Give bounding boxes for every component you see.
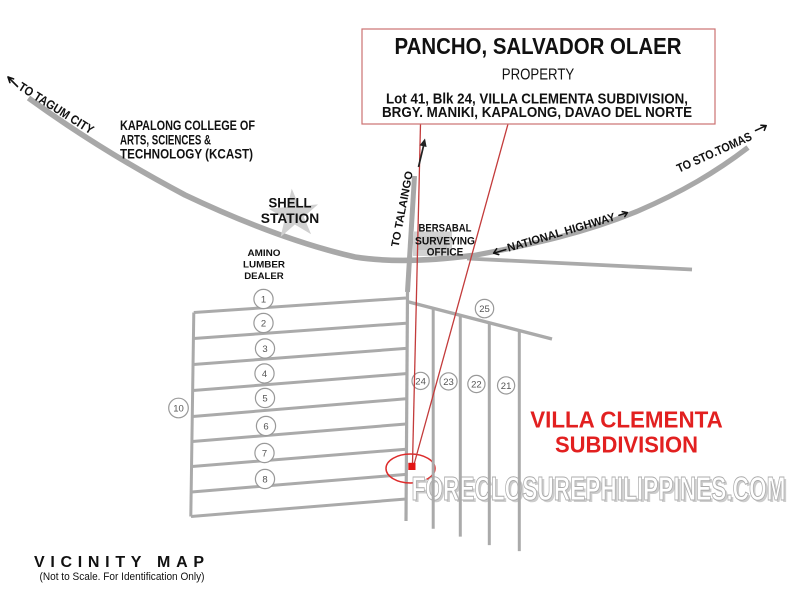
svg-text:DEALER: DEALER bbox=[244, 271, 284, 281]
svg-text:PANCHO, SALVADOR OLAER: PANCHO, SALVADOR OLAER bbox=[395, 33, 682, 59]
svg-text:7: 7 bbox=[262, 448, 267, 459]
svg-text:KAPALONG COLLEGE OF: KAPALONG COLLEGE OF bbox=[120, 118, 255, 133]
svg-text:OFFICE: OFFICE bbox=[427, 247, 464, 259]
svg-text:ARTS, SCIENCES &: ARTS, SCIENCES & bbox=[120, 132, 211, 147]
svg-text:3: 3 bbox=[262, 344, 267, 355]
svg-text:BRGY. MANIKI, KAPALONG, DAVAO: BRGY. MANIKI, KAPALONG, DAVAO DEL NORTE bbox=[382, 105, 692, 121]
svg-text:VICINITY MAP: VICINITY MAP bbox=[34, 554, 210, 571]
svg-text:LUMBER: LUMBER bbox=[243, 260, 285, 270]
svg-text:22: 22 bbox=[471, 379, 482, 390]
svg-text:4: 4 bbox=[262, 369, 267, 380]
svg-text:24: 24 bbox=[415, 376, 426, 387]
svg-text:25: 25 bbox=[479, 304, 490, 315]
svg-text:FORECLOSUREPHILIPPINES.COM: FORECLOSUREPHILIPPINES.COM bbox=[412, 471, 786, 508]
svg-text:AMINO: AMINO bbox=[248, 248, 281, 258]
svg-text:PROPERTY: PROPERTY bbox=[502, 66, 575, 83]
svg-text:SHELL: SHELL bbox=[269, 195, 312, 211]
svg-text:(Not to Scale. For Identificat: (Not to Scale. For Identification Only) bbox=[40, 571, 205, 583]
svg-text:STATION: STATION bbox=[261, 210, 320, 226]
svg-text:SURVEYING: SURVEYING bbox=[415, 235, 475, 247]
svg-text:BERSABAL: BERSABAL bbox=[419, 223, 472, 235]
svg-text:5: 5 bbox=[262, 393, 267, 404]
svg-text:TECHNOLOGY (KCAST): TECHNOLOGY (KCAST) bbox=[120, 147, 253, 162]
svg-text:1: 1 bbox=[261, 294, 266, 305]
svg-text:21: 21 bbox=[501, 381, 512, 392]
svg-text:2: 2 bbox=[261, 318, 266, 329]
svg-text:8: 8 bbox=[262, 474, 267, 485]
svg-text:23: 23 bbox=[443, 377, 454, 388]
svg-text:10: 10 bbox=[173, 403, 184, 414]
svg-text:SUBDIVISION: SUBDIVISION bbox=[555, 431, 698, 457]
svg-text:6: 6 bbox=[263, 421, 268, 432]
svg-text:VILLA CLEMENTA: VILLA CLEMENTA bbox=[530, 407, 723, 433]
